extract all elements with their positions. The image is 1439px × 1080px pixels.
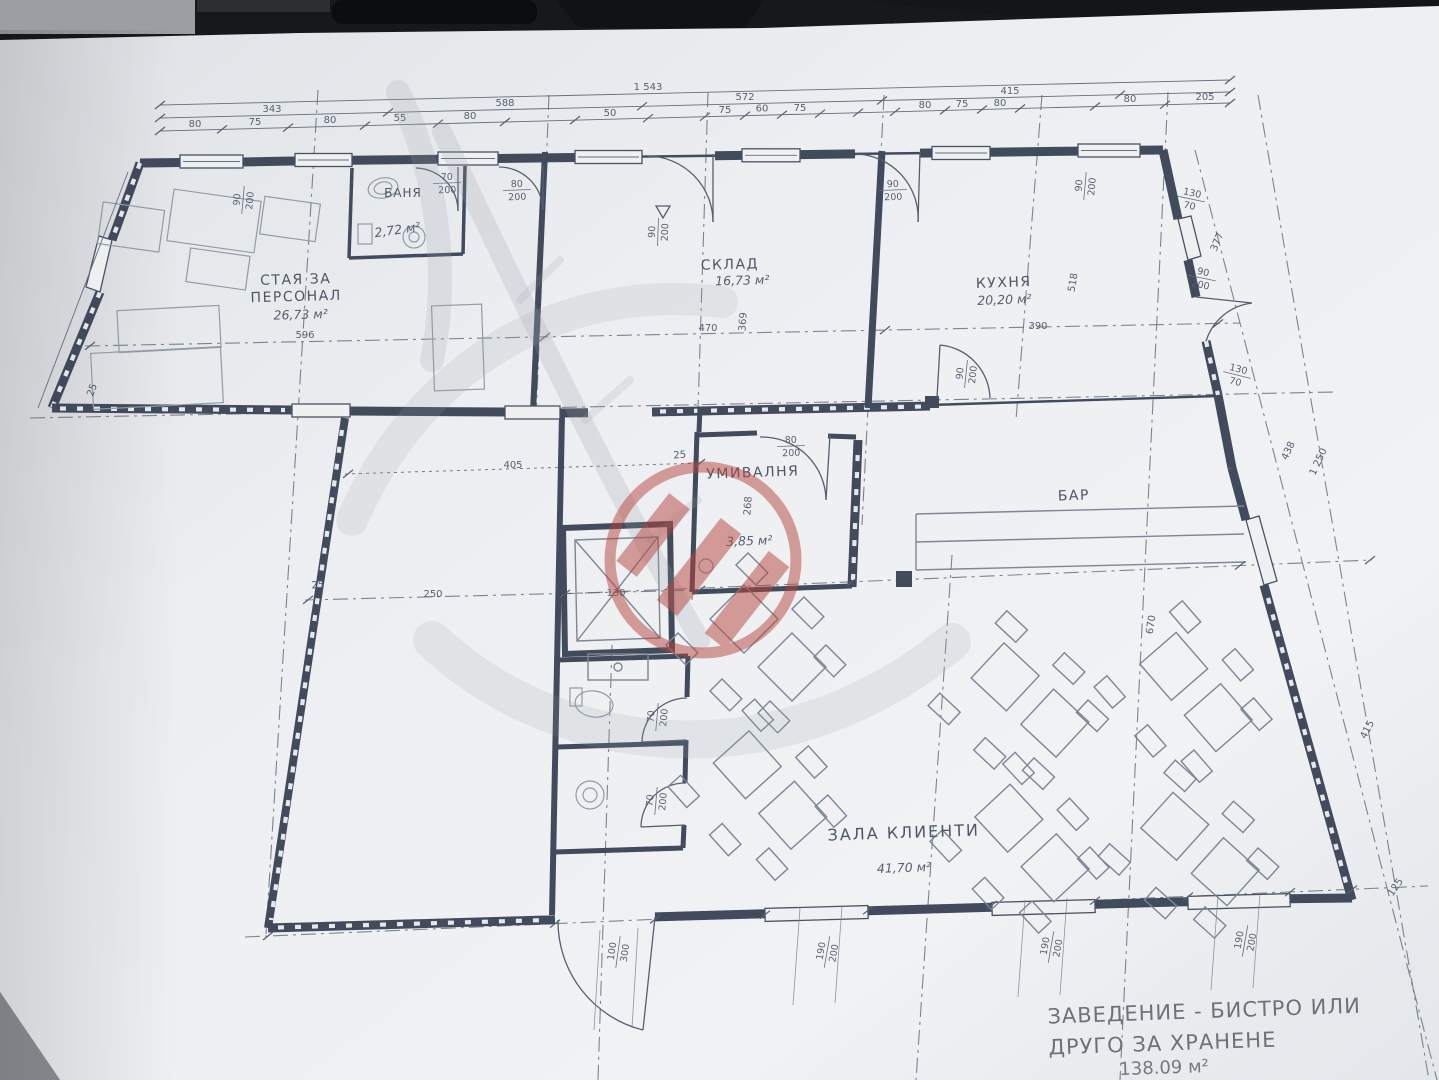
room-area: 26,73 м² — [273, 306, 328, 322]
room-name: КУХНЯ — [976, 274, 1032, 292]
opening-width: 80 — [511, 179, 523, 190]
dim-chain: 75 — [719, 105, 732, 116]
dim-washroom-height: 268 — [742, 496, 754, 516]
opening-height: 200 — [782, 448, 801, 460]
opening-width: 90 — [887, 179, 899, 190]
dim-chain: 80 — [1124, 94, 1137, 105]
room-name: СТАЯ ЗА — [260, 271, 332, 289]
opening-height: 200 — [244, 191, 257, 210]
dim-total-width: 1 543 — [634, 82, 663, 93]
dim-chain: 75 — [956, 99, 969, 110]
dim-wall-tick: 25 — [673, 450, 686, 462]
opening-height: 200 — [660, 223, 672, 242]
dim-chain: 60 — [756, 104, 769, 115]
dim-chain: 80 — [919, 100, 932, 111]
opening-height: 200 — [1086, 177, 1099, 196]
opening-height: 200 — [508, 192, 527, 204]
opening-width: 80 — [785, 435, 797, 446]
room-area: 20,20 м² — [977, 291, 1032, 308]
dim-kitchen-width: 390 — [1028, 321, 1047, 332]
summary-area: 138.09 м² — [1119, 1056, 1209, 1080]
dim-chain: 80 — [324, 115, 337, 126]
desk-object — [197, 0, 330, 12]
opening-width: 90 — [647, 226, 658, 238]
dim-row2: 415 — [1000, 86, 1019, 97]
room-area: 16,73 м² — [715, 272, 770, 288]
room-name: БАНЯ — [384, 186, 422, 200]
opening-height: 200 — [657, 792, 670, 811]
dim-chain: 80 — [189, 119, 202, 130]
dim-storage-width: 470 — [698, 323, 717, 334]
desk-edge — [1238, 0, 1439, 8]
dim-hall-width: 405 — [503, 460, 522, 471]
opening-height: 200 — [967, 365, 980, 384]
floor-plan-drawing: СТАЯ ЗА ПЕРСОНАЛ 26,73 м² БАНЯ 2,72 м² С… — [0, 0, 1439, 1080]
dim-wall-tick: 25 — [311, 580, 324, 592]
opening-height: 200 — [884, 192, 903, 204]
dim-chain: 75 — [794, 103, 807, 114]
room-name: СКЛАД — [701, 256, 760, 274]
dim-row2: 572 — [735, 92, 754, 103]
dim-staff-width: 596 — [295, 330, 314, 341]
dim-row2: 343 — [262, 104, 281, 115]
room-name: ПЕРСОНАЛ — [250, 288, 342, 306]
dim-storage-height: 369 — [737, 312, 749, 332]
dim-chain: 80 — [994, 98, 1007, 109]
room-bar-label: БАР — [1058, 487, 1091, 504]
room-area: 41,70 м² — [877, 859, 932, 876]
column — [896, 571, 912, 587]
opening-width: 70 — [645, 794, 657, 807]
dim-row2: 588 — [495, 98, 514, 109]
desk-object-dark — [332, 0, 537, 24]
dim-chain: 50 — [604, 108, 617, 119]
paper-shading — [0, 30, 180, 1080]
desk-object-dark2 — [556, 0, 764, 28]
opening-width: 90 — [954, 367, 966, 380]
opening-width: 90 — [232, 193, 244, 206]
dim-chain: 205 — [1195, 92, 1214, 103]
wall-band — [52, 408, 292, 410]
opening-width: 90 — [1074, 179, 1086, 192]
dim-left-width: 250 — [423, 589, 442, 600]
desk-object-left — [0, 0, 195, 34]
dim-chain: 75 — [249, 117, 262, 128]
photographed-floor-plan: СТАЯ ЗА ПЕРСОНАЛ 26,73 м² БАНЯ 2,72 м² С… — [0, 0, 1439, 1080]
dim-chain: 80 — [464, 111, 477, 122]
